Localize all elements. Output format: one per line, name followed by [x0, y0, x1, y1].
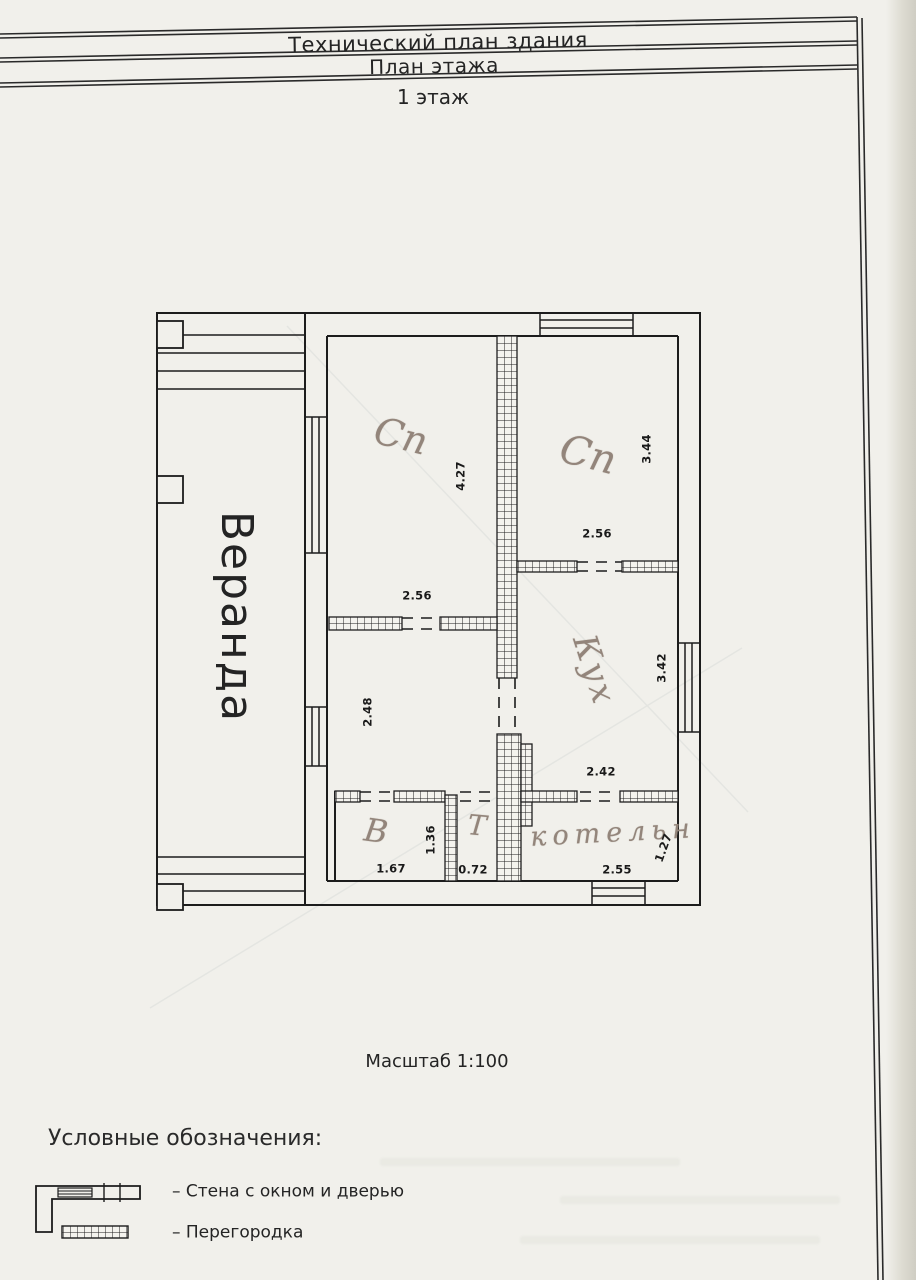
- dimension-boiler-width: 2.55: [602, 864, 632, 876]
- window-top-wall: [540, 313, 633, 336]
- dimension-bathroom-height: 1.36: [425, 825, 437, 855]
- dimension-bedroom2-height: 3.44: [641, 434, 653, 464]
- room-label-toilet: Т: [466, 811, 487, 841]
- structural-pillars: [157, 321, 183, 910]
- room-label-bathroom: В: [362, 814, 390, 849]
- dimension-toilet-width: 0.72: [458, 864, 488, 876]
- legend-item-wall-window-door-label: – Стена с окном и дверью: [172, 1184, 404, 1201]
- window-left-wall-upper: [305, 417, 327, 553]
- scale-label: Масштаб 1:100: [365, 1053, 508, 1071]
- document-subtitle: План этажа: [369, 55, 499, 77]
- dimension-middle-room-height: 2.48: [362, 697, 374, 727]
- legend-heading: Условные обозначения:: [48, 1128, 322, 1150]
- page-frame-border: [857, 17, 883, 1280]
- scan-bleed-artifact: [520, 1236, 820, 1244]
- floor-label: 1 этаж: [397, 87, 469, 107]
- room-label-bedroom-1: Сп: [370, 411, 431, 461]
- legend-item-partition-label: – Перегородка: [172, 1225, 303, 1242]
- legend-wall-window-door-symbol: [36, 1183, 140, 1232]
- dimension-kitchen-width: 2.42: [586, 766, 616, 778]
- paper-scan-edge: [886, 0, 916, 1280]
- dimension-bedroom2-width: 2.56: [582, 528, 612, 540]
- technical-plan-drawing: [0, 0, 916, 1280]
- room-label-veranda: Веранда: [214, 511, 258, 723]
- scan-bleed-artifact: [560, 1196, 840, 1204]
- legend-partition-symbol: [62, 1226, 128, 1238]
- window-bottom-wall: [592, 881, 645, 905]
- dimension-bedroom1-width: 2.56: [402, 590, 432, 602]
- window-left-wall-lower: [305, 707, 327, 766]
- dimension-kitchen-height: 3.42: [656, 653, 668, 683]
- scanned-technical-plan-page: Технический план здания План этажа 1 эта…: [0, 0, 916, 1280]
- dimension-bedroom1-height: 4.27: [455, 461, 467, 491]
- document-title: Технический план здания: [288, 30, 588, 56]
- scan-bleed-artifact: [380, 1158, 680, 1166]
- dimension-bathroom-width: 1.67: [376, 863, 406, 875]
- window-right-wall: [678, 643, 700, 732]
